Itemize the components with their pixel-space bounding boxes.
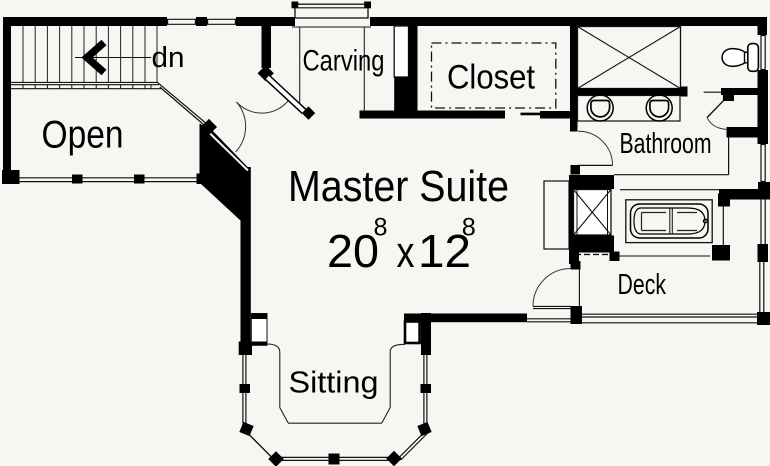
svg-text:Bathroom: Bathroom [620,128,712,160]
svg-text:Open: Open [42,114,124,157]
svg-text:Master Suite: Master Suite [288,163,509,211]
svg-text:Closet: Closet [447,58,536,96]
svg-text:Sitting: Sitting [289,365,379,400]
svg-text:dn: dn [152,42,185,74]
svg-text:Deck: Deck [618,269,667,301]
svg-text:8: 8 [462,213,476,241]
svg-text:8: 8 [374,213,388,241]
svg-text:x: x [397,228,415,277]
svg-text:20: 20 [327,225,379,277]
svg-text:Carving: Carving [303,45,385,78]
